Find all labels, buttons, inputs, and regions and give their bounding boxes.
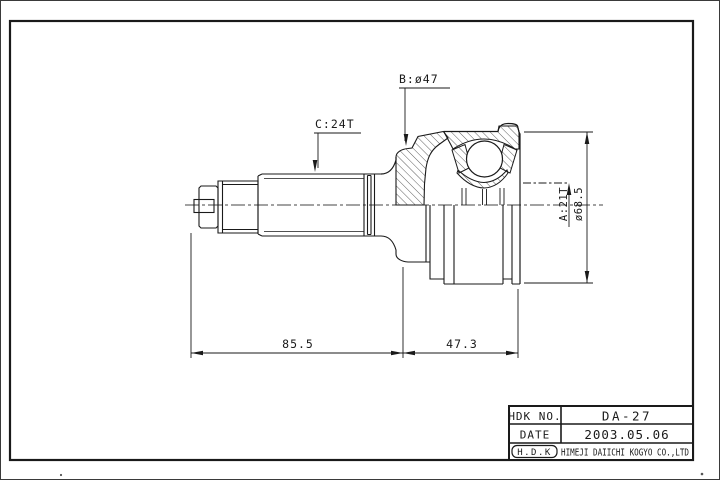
- date-label: DATE: [520, 429, 551, 442]
- dim-diameter-label: ø68.5: [573, 187, 585, 221]
- arrow-right-icon: [506, 351, 518, 356]
- snap-ring: [194, 200, 214, 213]
- arrow-left-icon: [191, 351, 203, 356]
- arrow-mid-right-icon: [403, 351, 415, 356]
- arrow-c-icon: [313, 160, 318, 172]
- dimension-arrows: [191, 132, 589, 355]
- paper-dot-right: [701, 473, 704, 476]
- hdk-logo: H.D.K: [517, 448, 552, 458]
- arrow-b-icon: [404, 134, 409, 146]
- outer-race-section: [381, 124, 520, 285]
- dim-a-label: A:21T: [558, 187, 570, 221]
- paper-dot-left: [60, 474, 62, 476]
- bearing-ball: [467, 141, 503, 177]
- company-name: HIMEJI DAIICHI KOGYO CO.,LTD: [561, 448, 689, 459]
- hdk-no-label: HDK NO.: [508, 410, 561, 423]
- outer-race-flange-hatch: [396, 132, 448, 206]
- dim-c-label: C:24T: [315, 117, 355, 131]
- bore-lines: [462, 188, 504, 205]
- shaft-tip: [199, 186, 218, 228]
- sheet-frame: [10, 21, 693, 460]
- shaft-boss: [218, 181, 258, 233]
- dimension-lines: [191, 88, 593, 358]
- title-block: HDK NO. DA-27 DATE 2003.05.06 H.D.K HIME…: [508, 406, 693, 460]
- arrow-mid-left-icon: [391, 351, 403, 356]
- dim-b-label: B:ø47: [399, 72, 439, 86]
- outer-race-lower: [381, 205, 520, 284]
- dim-length-left-label: 85.5: [282, 337, 314, 351]
- hdk-no-value: DA-27: [602, 409, 652, 424]
- drawing-sheet: B:ø47 C:24T 85.5 47.3 A:21T ø68.5 HDK NO…: [0, 0, 720, 480]
- dim-c-leader: [314, 133, 361, 168]
- dim-length-right-label: 47.3: [446, 337, 478, 351]
- arrow-up-icon: [585, 132, 590, 144]
- date-value: 2003.05.06: [584, 427, 669, 442]
- arrow-down-icon: [585, 271, 590, 283]
- cv-joint-drawing: B:ø47 C:24T 85.5 47.3 A:21T ø68.5 HDK NO…: [1, 1, 719, 479]
